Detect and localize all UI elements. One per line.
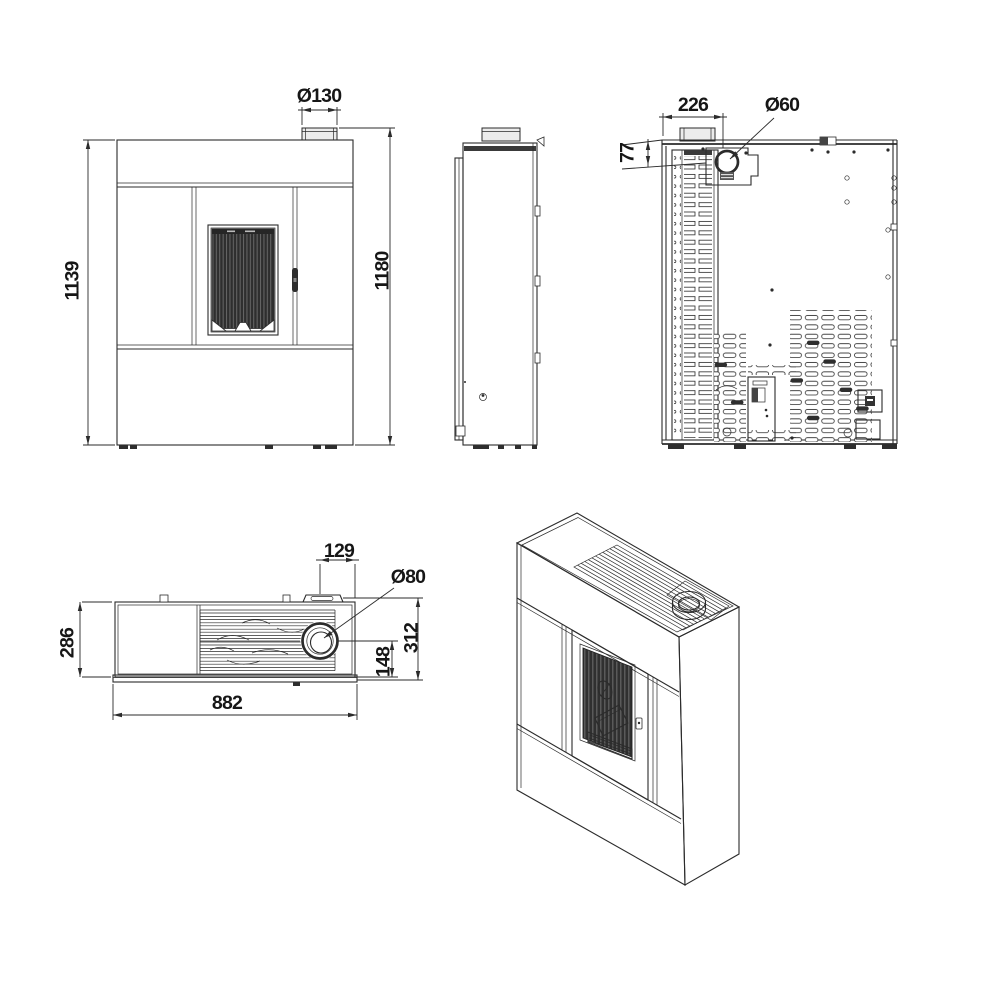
rear-slotted-column — [672, 150, 718, 440]
dim-label-top-exhaust-from-base: 148 — [373, 646, 395, 677]
rear-view: 226 Ø60 77 — [608, 78, 918, 463]
dim-top-exhaust-from-base: 148 — [338, 641, 398, 677]
side-keyhole-knob — [480, 394, 487, 401]
dim-top-exhaust-offset-right: 129 — [316, 540, 359, 598]
iso-right-face — [679, 607, 739, 885]
dim-label-rear-offset-x: 226 — [678, 94, 709, 116]
dim-top-width: 882 — [113, 684, 357, 720]
dim-front-total-height: 1180 — [339, 128, 395, 445]
dim-top-depth: 286 — [57, 602, 113, 677]
dim-label-top-total-depth: 312 — [401, 622, 423, 653]
dim-label-top-width: 882 — [212, 692, 243, 714]
top-view: 286 882 129 Ø80 148 31 — [42, 528, 437, 728]
front-door-handle — [292, 268, 298, 292]
front-flue-collar — [302, 128, 337, 140]
dim-label-rear-exhaust-diameter: Ø60 — [765, 94, 800, 116]
dim-label-top-depth: 286 — [57, 627, 79, 658]
side-feet — [473, 445, 537, 449]
dim-front-body-height: 1139 — [62, 140, 116, 445]
rear-flue-collar — [680, 128, 715, 141]
dim-label-front-flue: Ø130 — [297, 85, 342, 107]
dim-front-flue-diameter: Ø130 — [297, 85, 342, 125]
technical-drawing-canvas: Ø130 1139 1180 — [0, 0, 1000, 1000]
front-door-window — [208, 225, 278, 335]
dim-label-rear-offset-top: 77 — [617, 143, 639, 163]
dim-label-top-offset-right: 129 — [324, 540, 355, 562]
front-feet — [119, 445, 337, 449]
iso-top-grille — [574, 545, 726, 630]
dim-label-front-total-height: 1180 — [372, 250, 394, 290]
iso-door — [572, 630, 648, 800]
isometric-view — [495, 500, 760, 900]
side-body — [455, 137, 544, 445]
dim-rear-exhaust-diameter: Ø60 — [730, 94, 800, 159]
dim-label-top-exhaust-diameter: Ø80 — [391, 566, 426, 588]
iso-door-handle — [636, 718, 642, 729]
rear-vent-grids — [714, 310, 872, 442]
dim-label-front-body-height: 1139 — [62, 260, 84, 300]
side-view — [445, 118, 560, 458]
side-flue-collar — [482, 128, 520, 141]
iso-top-face — [517, 513, 739, 637]
front-view: Ø130 1139 1180 — [55, 75, 405, 465]
iso-door-window — [583, 648, 632, 757]
